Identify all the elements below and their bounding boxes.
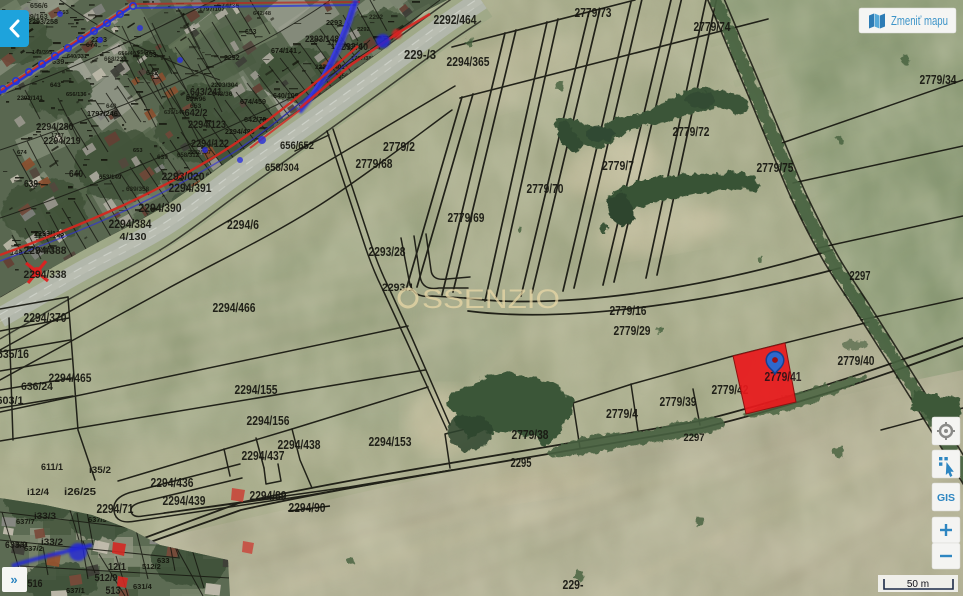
svg-text:2779/29: 2779/29 <box>614 323 651 338</box>
svg-text:2779/40: 2779/40 <box>838 353 875 368</box>
svg-text:637/1: 637/1 <box>66 586 85 595</box>
svg-text:2294/153: 2294/153 <box>369 434 412 449</box>
svg-text:2779/69: 2779/69 <box>448 210 485 225</box>
svg-text:512/9: 512/9 <box>95 573 118 584</box>
svg-text:658/304: 658/304 <box>265 162 300 174</box>
svg-text:2294/437: 2294/437 <box>242 448 285 463</box>
svg-text:2779/73: 2779/73 <box>575 5 612 20</box>
svg-text:2294/365: 2294/365 <box>447 54 490 69</box>
svg-text:2779/68: 2779/68 <box>356 156 393 171</box>
svg-text:2294/370: 2294/370 <box>24 310 67 325</box>
svg-text:516: 516 <box>28 578 43 590</box>
svg-text:2294/390: 2294/390 <box>139 201 182 215</box>
svg-text:633/9: 633/9 <box>5 540 27 551</box>
svg-text:611/1: 611/1 <box>41 462 64 473</box>
svg-text:2294/391: 2294/391 <box>169 181 212 195</box>
svg-text:i12/4: i12/4 <box>27 487 50 498</box>
svg-text:12/1: 12/1 <box>108 562 126 573</box>
svg-text:2779/4: 2779/4 <box>606 406 639 421</box>
svg-text:2779/72: 2779/72 <box>673 124 710 139</box>
svg-text:50 m: 50 m <box>907 579 929 590</box>
svg-text:2297: 2297 <box>684 432 705 444</box>
svg-text:2779/16: 2779/16 <box>610 303 647 318</box>
svg-text:229-/3: 229-/3 <box>404 47 436 62</box>
svg-text:639: 639 <box>24 179 38 190</box>
svg-text:642/2: 642/2 <box>185 107 208 119</box>
svg-text:2294/388: 2294/388 <box>24 245 67 257</box>
svg-text:635/16: 635/16 <box>0 347 29 361</box>
svg-text:2293/28: 2293/28 <box>369 244 406 259</box>
svg-text:2294/436: 2294/436 <box>151 475 194 490</box>
svg-text:229-: 229- <box>563 577 584 592</box>
svg-text:Zmeniť mapu: Zmeniť mapu <box>891 14 948 28</box>
svg-text:2779/7: 2779/7 <box>602 158 634 173</box>
svg-text:2294/123: 2294/123 <box>188 119 226 131</box>
svg-text:640: 640 <box>69 169 83 180</box>
svg-text:2294/156: 2294/156 <box>247 413 290 428</box>
svg-text:637/7: 637/7 <box>16 517 35 526</box>
svg-text:2294/465: 2294/465 <box>49 371 92 385</box>
svg-text:513: 513 <box>106 585 121 596</box>
svg-text:»: » <box>10 572 17 587</box>
svg-text:2294/155: 2294/155 <box>235 382 278 397</box>
svg-text:2779/41: 2779/41 <box>765 369 802 384</box>
svg-text:2294/6: 2294/6 <box>227 217 259 232</box>
svg-text:643/241: 643/241 <box>190 86 222 98</box>
svg-text:i33/2: i33/2 <box>41 537 63 548</box>
svg-text:2294/122: 2294/122 <box>191 138 229 150</box>
svg-text:GIS: GIS <box>937 492 955 504</box>
svg-text:i35/2: i35/2 <box>89 465 111 476</box>
svg-text:2294/384: 2294/384 <box>109 217 152 231</box>
svg-text:2294/466: 2294/466 <box>213 300 256 315</box>
svg-text:636/24: 636/24 <box>21 381 54 393</box>
svg-text:2779/2: 2779/2 <box>383 139 415 154</box>
svg-text:2779/34: 2779/34 <box>920 72 958 87</box>
svg-text:2294/439: 2294/439 <box>163 493 206 508</box>
svg-text:2779/75: 2779/75 <box>757 160 794 175</box>
svg-text:i33/3: i33/3 <box>34 511 56 522</box>
svg-text:2294/89: 2294/89 <box>250 488 287 503</box>
svg-text:631/4: 631/4 <box>133 582 153 591</box>
svg-text:2779/74: 2779/74 <box>694 19 732 34</box>
svg-text:2293/148: 2293/148 <box>305 34 339 45</box>
svg-text:2294/71: 2294/71 <box>97 501 134 516</box>
svg-text:SSENZIO: SSENZIO <box>422 284 560 314</box>
svg-text:4/130: 4/130 <box>120 232 147 243</box>
svg-text:603/1: 603/1 <box>0 395 24 407</box>
svg-text:2779/39: 2779/39 <box>660 394 697 409</box>
svg-text:i26/25: i26/25 <box>64 487 96 498</box>
svg-text:2294/280: 2294/280 <box>37 121 74 133</box>
svg-text:2293/020: 2293/020 <box>162 171 205 183</box>
svg-text:2779/38: 2779/38 <box>512 427 549 442</box>
svg-text:2292/464: 2292/464 <box>434 12 478 27</box>
svg-text:2295: 2295 <box>511 455 532 470</box>
svg-text:633: 633 <box>157 556 170 565</box>
svg-text:2297: 2297 <box>850 268 871 283</box>
svg-text:2779/70: 2779/70 <box>527 181 564 196</box>
svg-text:2294/338: 2294/338 <box>24 269 67 281</box>
svg-text:2294/219: 2294/219 <box>44 135 81 147</box>
